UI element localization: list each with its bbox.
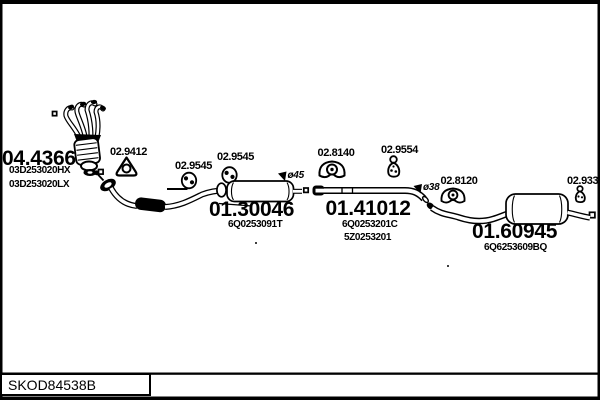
- fitting-code-gasket: 02.9412: [110, 147, 147, 158]
- part-code-rear-muffler: 01.60945: [472, 221, 557, 242]
- rubber-hanger-icon: [182, 173, 196, 189]
- catalog-code: SKOD84538B: [8, 378, 96, 392]
- fitting-code-hanger: 02.9554: [381, 145, 418, 156]
- catalog-code-box: SKOD84538B: [0, 373, 151, 396]
- exhaust-parts-diagram-page: 04.4366 03D253020HX 03D253020LX 02.9412 …: [0, 0, 600, 400]
- oe-number: 6Q6253609BQ: [484, 243, 547, 253]
- part-code-centre-muffler: 01.30046: [209, 199, 294, 220]
- oe-number: 03D253020LX: [9, 180, 69, 190]
- pear-hanger-icon: [576, 186, 585, 202]
- fitting-code-clamp: 02.8140: [318, 148, 355, 159]
- clamp-bracket-icon: [441, 189, 464, 203]
- pear-hanger-icon: [388, 156, 399, 176]
- oe-number: 5Z0253201: [344, 233, 391, 243]
- oe-number: 6Q0253201C: [342, 220, 398, 230]
- scan-specks: [255, 242, 449, 267]
- pipe-diameter-label: ø38: [423, 183, 439, 193]
- fitting-code-hanger: 02.9545: [175, 161, 212, 172]
- part-code-centre-pipe: 01.41012: [326, 198, 411, 219]
- oe-number: 03D253020HX: [9, 166, 70, 176]
- fitting-code-hanger: 02.9545: [217, 152, 254, 163]
- pipe-diameter-label: ø45: [288, 171, 304, 181]
- clamp-bracket-icon: [319, 162, 344, 178]
- oe-number: 6Q0253091T: [228, 220, 282, 230]
- fitting-code-hanger: 02.9335: [567, 176, 600, 187]
- exhaust-diagram-drawing: [0, 0, 600, 400]
- gasket-triangle-icon: [117, 158, 137, 176]
- fitting-code-clamp: 02.8120: [441, 176, 478, 187]
